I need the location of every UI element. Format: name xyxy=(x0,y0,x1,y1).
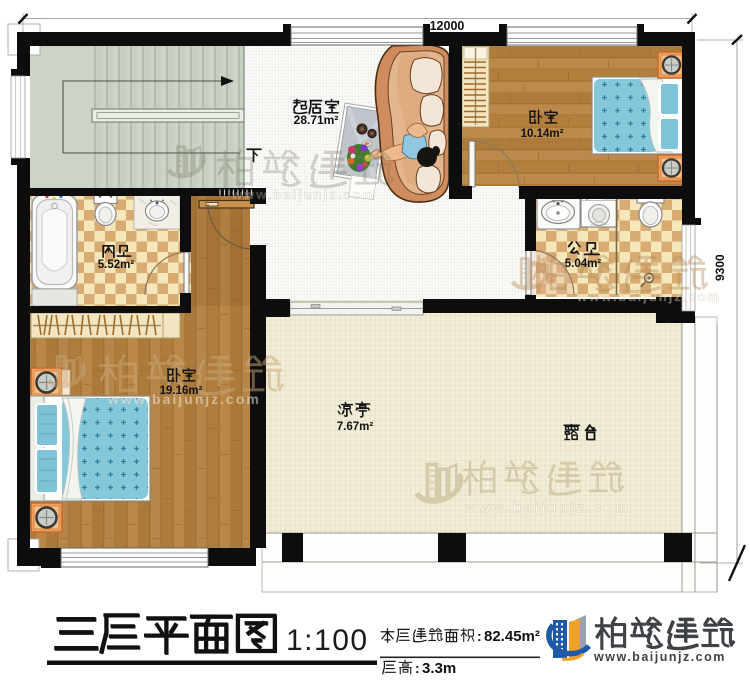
svg-text:www.baijunjz.com: www.baijunjz.com xyxy=(576,289,721,304)
svg-text:1:100: 1:100 xyxy=(286,624,369,657)
svg-text:28.71m²: 28.71m² xyxy=(294,113,339,127)
svg-text:5.04m²: 5.04m² xyxy=(565,258,602,270)
svg-text:12000: 12000 xyxy=(430,19,465,33)
svg-text:www.baijunjz.com: www.baijunjz.com xyxy=(465,500,631,515)
svg-text:19.16m²: 19.16m² xyxy=(160,385,203,397)
svg-text::: : xyxy=(477,628,482,644)
svg-text:7.67m²: 7.67m² xyxy=(337,421,374,433)
svg-text:www.baijunjz.com: www.baijunjz.com xyxy=(231,187,376,202)
svg-text:9300: 9300 xyxy=(713,254,727,281)
svg-text:www.baijunjz.com: www.baijunjz.com xyxy=(593,650,726,664)
svg-text:3.3m: 3.3m xyxy=(422,660,456,677)
svg-text:10.14m²: 10.14m² xyxy=(521,128,564,140)
svg-text::: : xyxy=(415,660,420,676)
svg-text:5.52m²: 5.52m² xyxy=(98,259,135,271)
svg-text:82.45m²: 82.45m² xyxy=(484,628,540,645)
